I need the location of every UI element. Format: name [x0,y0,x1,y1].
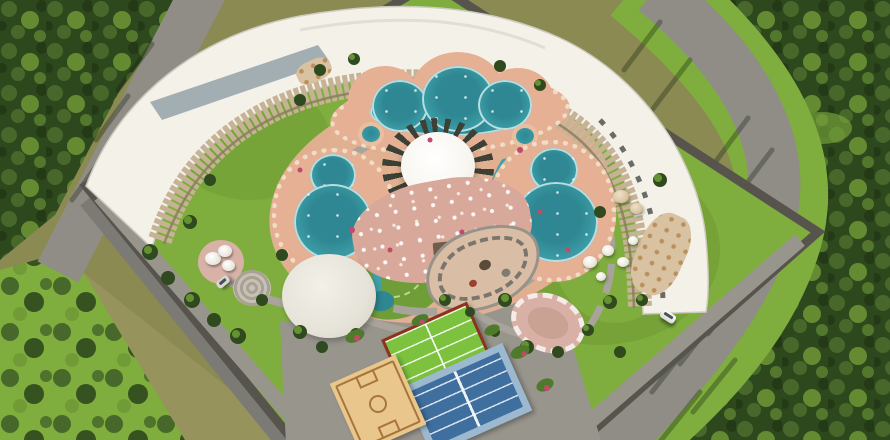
aerial-resort-render [0,0,890,440]
amphitheater [233,270,271,306]
dome-tent [628,236,638,245]
car-windshield [663,312,673,320]
dome-tent-beige [613,190,629,203]
dome-tent [583,256,597,268]
car-windshield [219,278,227,285]
events-dome-plaza [282,254,376,338]
dome-tent-beige [630,203,643,214]
pavilion-floor [523,301,573,345]
dome-tent [617,257,629,267]
tent [222,260,235,271]
dome-tent [602,245,614,256]
dome-tent [596,272,606,281]
tent [218,245,232,257]
kids-pool-west [358,122,384,146]
pool-lobe [478,80,532,130]
